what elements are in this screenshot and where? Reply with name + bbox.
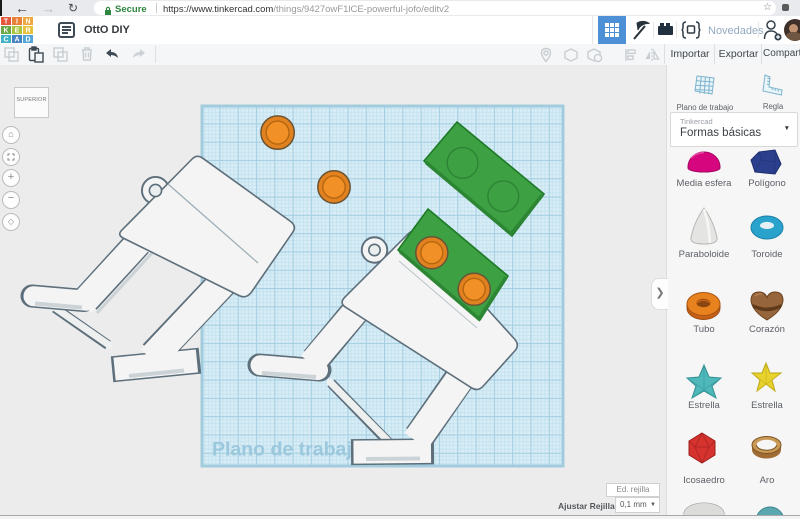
- svg-text:Polígono: Polígono: [748, 178, 786, 189]
- svg-text:Corazón: Corazón: [749, 324, 785, 335]
- svg-text:Paraboloide: Paraboloide: [679, 249, 730, 260]
- svg-text:Media esfera: Media esfera: [677, 178, 733, 189]
- svg-text:T: T: [4, 19, 9, 26]
- svg-text:R: R: [25, 28, 30, 35]
- svg-text:Aro: Aro: [760, 475, 775, 486]
- svg-text:Estrella: Estrella: [751, 400, 783, 411]
- svg-text:K: K: [3, 28, 8, 35]
- svg-text:D: D: [25, 37, 30, 44]
- svg-text:Tubo: Tubo: [693, 324, 714, 335]
- svg-text:E: E: [15, 28, 20, 35]
- svg-text:C: C: [3, 37, 8, 44]
- svg-text:N: N: [25, 19, 30, 26]
- svg-text:I: I: [16, 19, 18, 26]
- svg-text:A: A: [14, 37, 19, 44]
- svg-text:Toroide: Toroide: [751, 249, 782, 260]
- svg-text:Icosaedro: Icosaedro: [683, 475, 725, 486]
- svg-text:Plano de trabajo: Plano de trabajo: [212, 439, 364, 461]
- svg-text:Estrella: Estrella: [688, 400, 720, 411]
